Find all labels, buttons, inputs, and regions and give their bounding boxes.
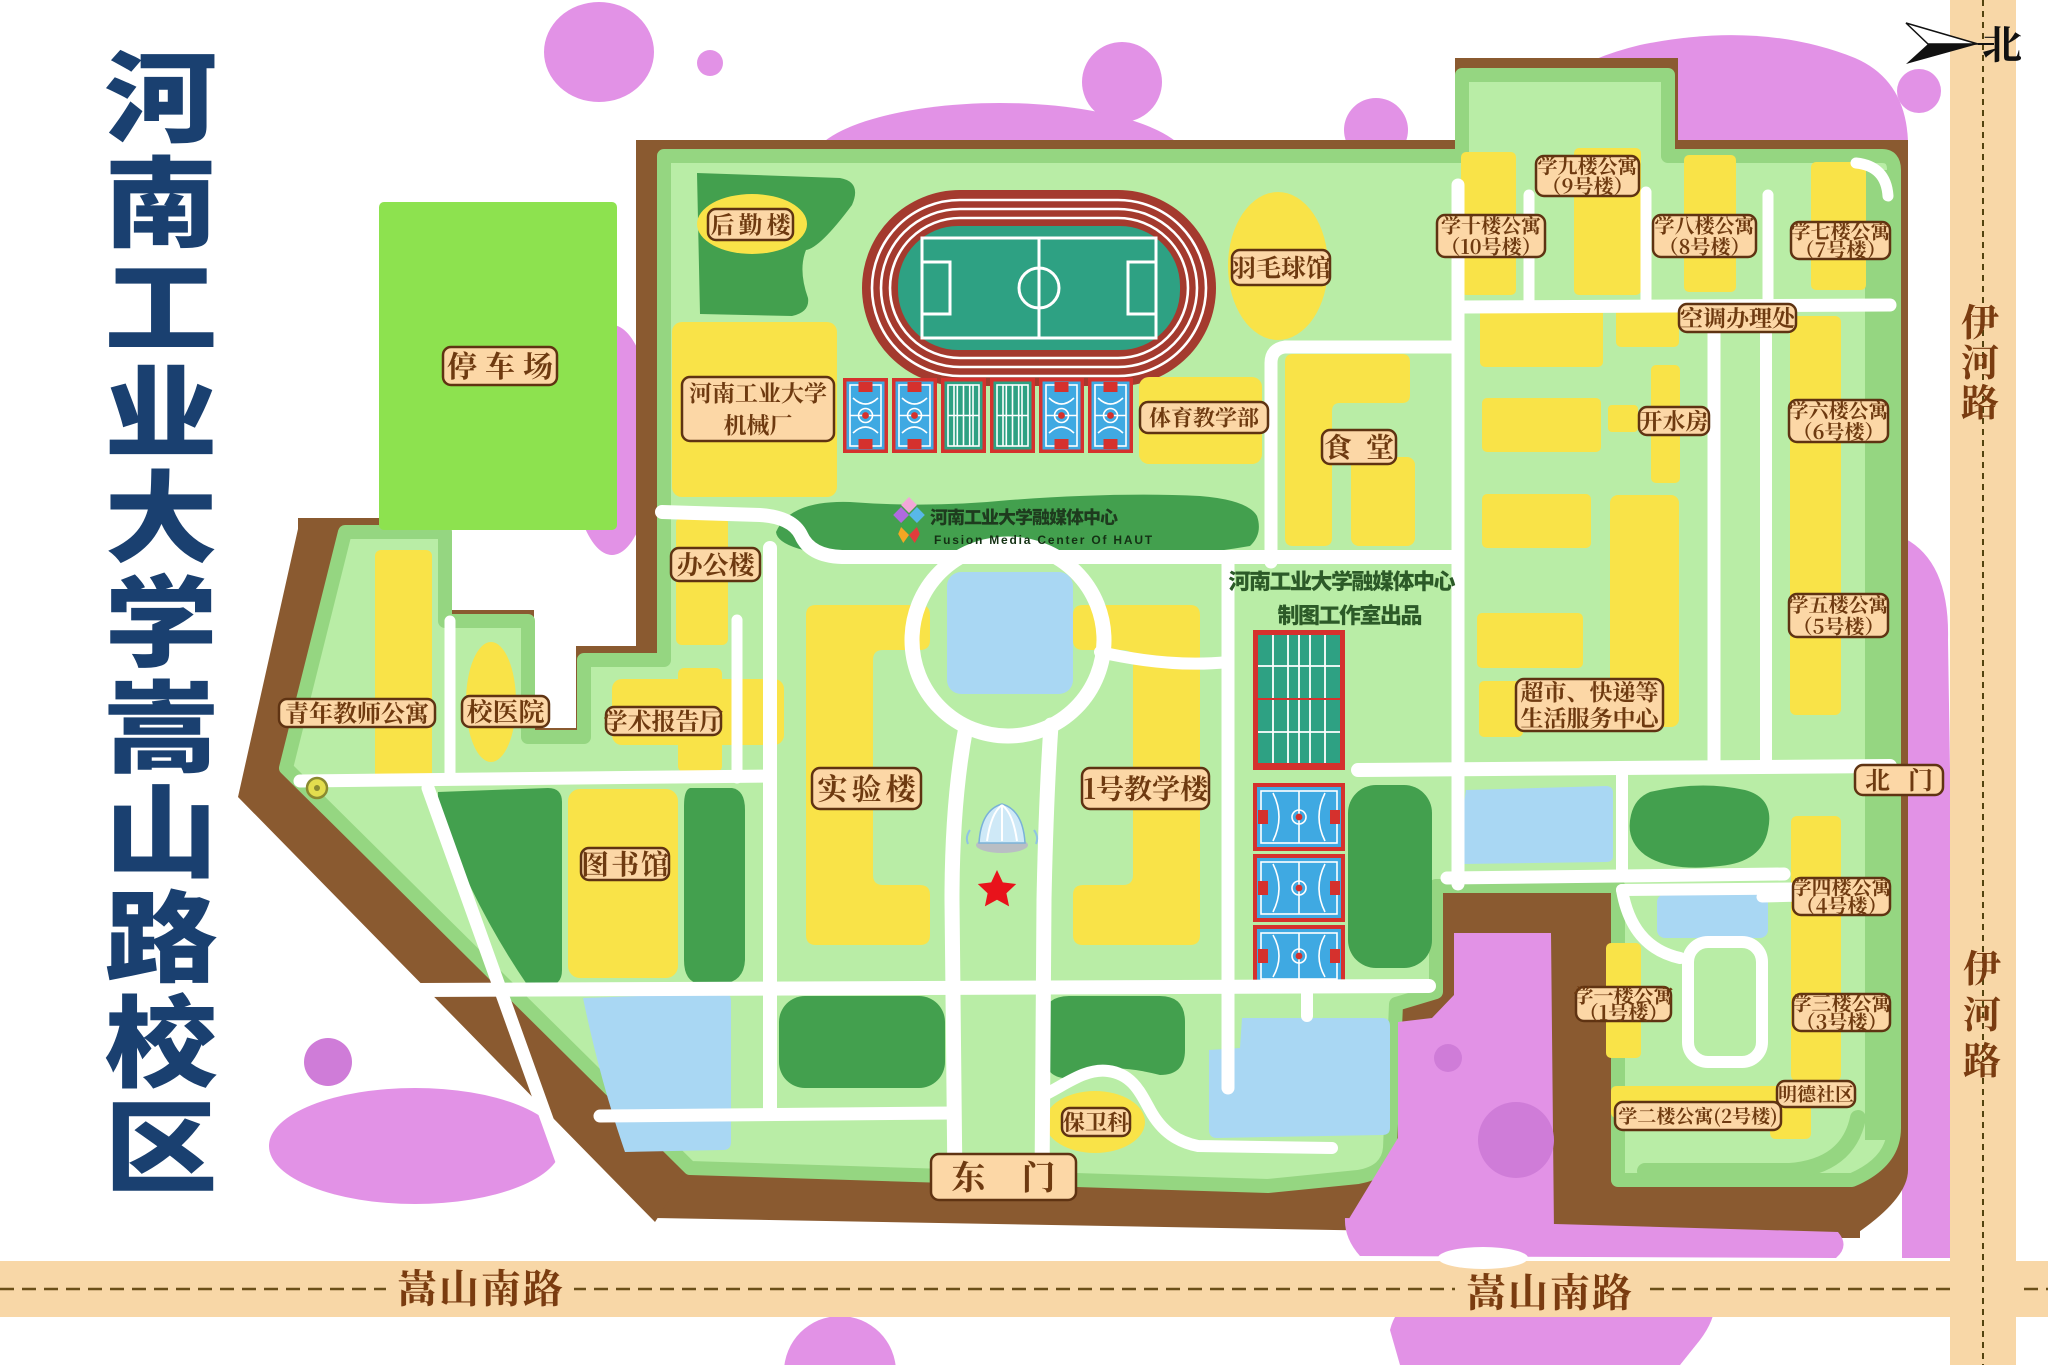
svg-text:Fusion Media Center Of HAUT: Fusion Media Center Of HAUT [934, 533, 1154, 547]
